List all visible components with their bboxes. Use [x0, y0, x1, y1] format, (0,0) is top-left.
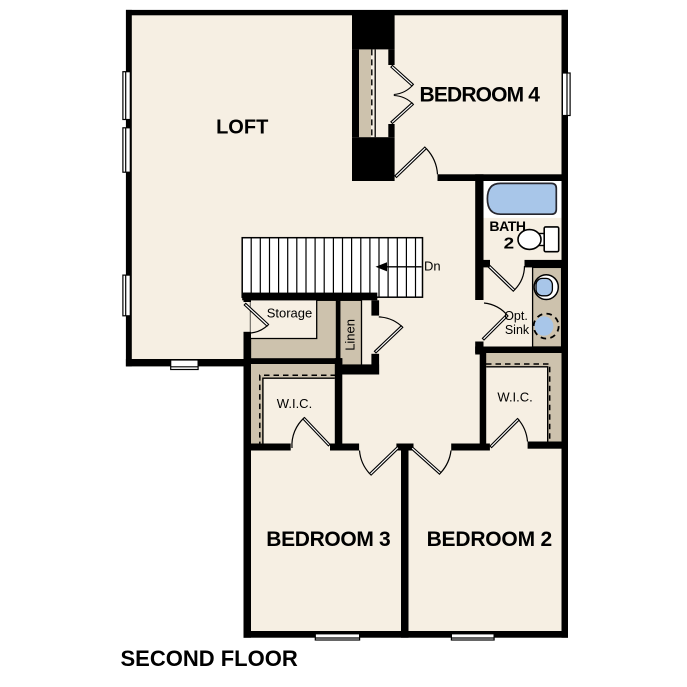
svg-text:Dn: Dn — [424, 259, 441, 274]
svg-text:2: 2 — [504, 236, 515, 253]
svg-text:W.I.C.: W.I.C. — [497, 390, 532, 405]
svg-text:BEDROOM 4: BEDROOM 4 — [420, 83, 541, 106]
svg-text:BEDROOM 3: BEDROOM 3 — [266, 528, 390, 551]
svg-text:Linen: Linen — [343, 319, 358, 351]
svg-text:Storage: Storage — [267, 305, 313, 320]
svg-text:Opt.: Opt. — [504, 309, 528, 323]
svg-text:LOFT: LOFT — [216, 117, 268, 139]
svg-text:BEDROOM 2: BEDROOM 2 — [427, 528, 552, 551]
svg-text:BATH: BATH — [489, 218, 526, 234]
svg-text:W.I.C.: W.I.C. — [277, 396, 312, 411]
svg-text:SECOND FLOOR: SECOND FLOOR — [121, 646, 298, 671]
svg-text:Sink: Sink — [505, 323, 530, 337]
